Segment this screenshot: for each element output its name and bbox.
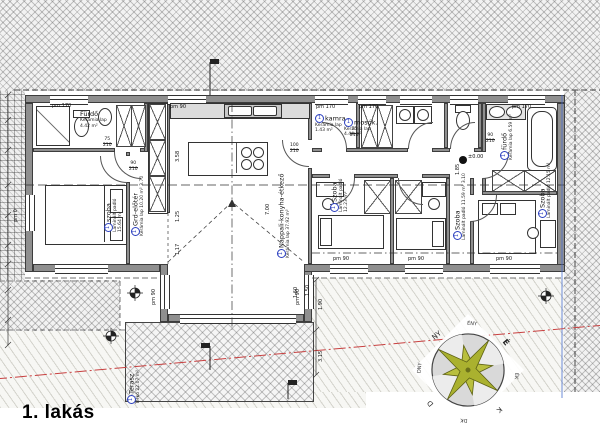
partition-corridor-top-a: [312, 148, 322, 152]
room-name: fürdő: [501, 133, 509, 150]
bed-pillow: [320, 218, 332, 246]
room-floor: Kerámia lap: [509, 133, 514, 160]
chair-icon-bedroom-b: [428, 198, 440, 210]
compass-label: DK: [459, 417, 467, 424]
window-sill-label: pm 170: [512, 105, 531, 111]
sliding-door-terrace: [180, 314, 296, 324]
dimension-label: 1.60: [294, 287, 300, 298]
room-area: 37.92 m²: [286, 209, 291, 230]
stove-burner-icon: [241, 147, 252, 158]
room-floor: Kerámia lap: [80, 118, 107, 123]
sink-bowl-icon: [253, 106, 277, 116]
room-dim: 3.70: [140, 176, 145, 186]
room-area: 12.23 m²: [344, 179, 349, 212]
room-name: kamra: [325, 115, 346, 123]
window-sill-label: pm 170: [316, 105, 335, 111]
partition-corridor-top-b: [346, 148, 408, 152]
window-sill-label: pm 170: [359, 105, 378, 111]
dimension-label: 3.15: [319, 351, 325, 362]
room-number-badge: 1: [277, 249, 286, 258]
terrace-area: [125, 322, 314, 402]
room-label-szoba-c: 1Szoba Laminált padló 12.15 m²: [538, 163, 552, 218]
window-bedroom-c-bottom: [490, 264, 540, 274]
room-area: 4.42 m²: [80, 124, 107, 129]
room-label-nappali: 1Nappali-konyha-étkező Kerámia lap 37.92…: [277, 174, 291, 258]
partition-mosok-right: [444, 103, 448, 148]
room-area: 1.43 m²: [315, 128, 346, 133]
room-label-szoba-left: 1szoba Laminált padló 15.64 m²: [104, 199, 123, 232]
chair-icon-bedroom-c: [527, 227, 539, 239]
wardrobe-icon: [149, 176, 166, 212]
room-floor: Térkő: [136, 392, 141, 404]
window-bedroom-b-bottom: [405, 264, 443, 274]
window-bedroom-left-west: [25, 195, 35, 231]
plan-title: 1. lakás: [22, 402, 95, 424]
room-name: Terasz: [128, 374, 136, 394]
site-hatch-top: [0, 0, 600, 91]
room-number-badge: 1: [344, 118, 353, 127]
partition-bedroom-b-corridor: [446, 178, 450, 264]
window-mosok: [400, 95, 432, 105]
room-number-badge: 1: [315, 114, 324, 123]
partition-bedrooms-top-a: [312, 174, 330, 178]
dimension-label: 7.00: [266, 204, 272, 215]
room-label-szoba-a: 1Szoba Laminált padló 12.23 m²: [330, 179, 349, 212]
wall-exterior-top: [25, 95, 565, 103]
washing-machine-drum: [399, 109, 411, 121]
bath-closet-icon: [116, 105, 132, 147]
partition-corridor-top-c: [432, 148, 450, 152]
stove-burner-icon: [241, 159, 252, 170]
bedroom-a-wardrobe-icon: [364, 180, 391, 214]
bed-pillow: [432, 221, 444, 247]
wardrobe-icon: [149, 140, 166, 176]
room-label-szoba-b: 1Szoba Laminált padló 11.59 m² 3.10: [453, 173, 467, 240]
window-sill-label: pm 90: [152, 289, 158, 305]
room-floor: Kerámia lap: [286, 231, 291, 258]
partition-living-right-b: [308, 168, 312, 264]
room-area: 6.59 m²: [509, 114, 514, 132]
room-area: 22.07 m²: [136, 370, 141, 391]
door-size-label: 75210: [350, 128, 359, 139]
dimension-label: 1.90: [319, 299, 325, 310]
level-marker-icon: [127, 285, 143, 301]
room-label-furdo-right: 1fürdő Kerámia lap 6.59 m²: [500, 114, 514, 160]
window-sill-label: pm 90: [408, 257, 424, 263]
garden-hatch-right: [312, 278, 564, 392]
dimension-label: 3.58: [176, 151, 182, 162]
room-name: Szoba: [539, 188, 547, 208]
room-label-grd-eloter: 1Grd-előtér Kerámia lap 10.20 m² 3.70: [131, 176, 145, 236]
dimension-label: 1.25: [176, 211, 182, 222]
room-name: szoba: [105, 203, 113, 222]
room-area: 15.64 m²: [118, 199, 123, 232]
room-name: Szoba: [331, 182, 339, 202]
room-number-badge: 1: [453, 231, 462, 240]
bed-pillow: [500, 203, 516, 215]
room-floor: Laminált padló: [462, 207, 467, 240]
window-sill-label: pm 0: [14, 209, 20, 222]
wall-exterior-left: [25, 103, 33, 272]
room-name: Szoba: [454, 210, 462, 230]
room-number-badge: 1: [500, 151, 509, 160]
sink-bowl-icon: [228, 106, 252, 116]
room-name: Grd-előtér: [132, 193, 140, 226]
window-sill-label: pm 90: [333, 257, 349, 263]
compass-label: K: [495, 405, 504, 414]
compass-label: D: [426, 399, 436, 408]
desk-icon-bedroom-b: [422, 182, 446, 197]
window-bedroom-left-bottom: [55, 264, 108, 274]
dimension-label: 1.17: [176, 244, 182, 255]
room-number-badge: 1: [330, 203, 339, 212]
stove-burner-icon: [253, 147, 264, 158]
window-sill-label: pm 170: [52, 104, 71, 110]
window-bedroom-a-bottom: [330, 264, 368, 274]
window-living-west: [160, 275, 170, 309]
room-floor: Kerámia lap: [140, 209, 145, 236]
wardrobe-icon: [149, 104, 166, 140]
stove-burner-icon: [253, 159, 264, 170]
room-area: 12.15 m²: [547, 163, 552, 184]
partition-bedroom-c-left-a: [470, 178, 474, 195]
hall-closet-icon: [377, 105, 393, 148]
room-label-kamra: 1kamra Kerámia lap 1.43 m²: [315, 114, 346, 133]
desk-icon-bedroom-c: [540, 220, 556, 248]
partition-bedroom-c-left-b: [470, 221, 474, 264]
level-label: ±0.00: [468, 155, 483, 161]
washing-machine-drum: [417, 109, 429, 121]
room-dim: 3.10: [462, 173, 467, 183]
window-sill-label: pm 90: [170, 105, 186, 111]
room-number-badge: 1: [127, 395, 136, 404]
shower-icon: [36, 106, 70, 146]
room-floor: Laminált padló: [547, 185, 552, 218]
site-hatch-right: [564, 91, 600, 392]
room-name: mosók.: [354, 119, 378, 127]
room-name: Nappali-konyha-étkező: [278, 174, 286, 248]
door-size-label: 75210: [103, 138, 112, 149]
bathtub-inner: [531, 111, 553, 167]
bath-closet-icon: [131, 105, 146, 147]
floorplan-canvas: Fürdő Kerámia lap 4.42 m² 1kamra Kerámia…: [0, 0, 600, 441]
door-size-label: 100210: [290, 144, 299, 155]
wall-exterior-right: [557, 103, 565, 272]
dimension-label: 1.50: [306, 285, 312, 296]
room-number-badge: 1: [104, 223, 113, 232]
room-area: 10.20 m²: [140, 187, 145, 208]
dimension-label: 1.85: [456, 164, 462, 175]
window-sill-label: pm 90: [496, 257, 512, 263]
door-size-label: 90210: [129, 162, 138, 173]
room-area: 11.59 m²: [462, 185, 467, 206]
room-label-terasz: 1Terasz Térkő 22.07 m²: [127, 370, 141, 404]
door-size-label: 90210: [486, 134, 495, 145]
window-wc: [450, 95, 478, 105]
partition-corridor-top-d: [474, 148, 482, 152]
room-number-badge: 1: [131, 227, 140, 236]
terrace-hatch-left-block: [0, 280, 120, 331]
room-number-badge: 1: [538, 209, 547, 218]
room-label-furdo-left: Fürdő Kerámia lap 4.42 m²: [80, 111, 107, 129]
island-divider-line: [236, 143, 237, 173]
